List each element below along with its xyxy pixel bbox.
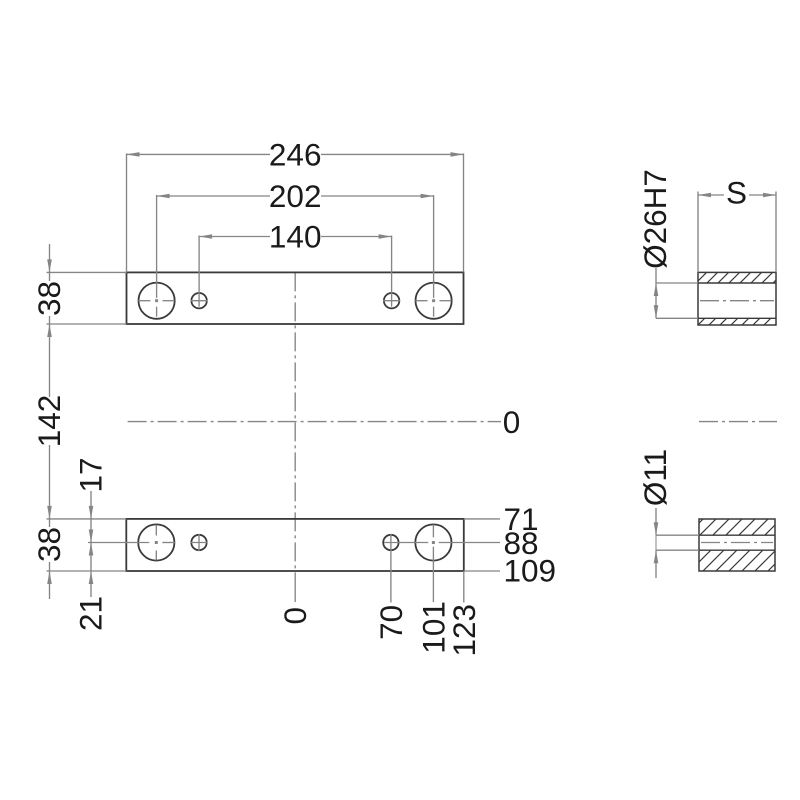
svg-text:38: 38	[31, 281, 67, 316]
svg-text:142: 142	[31, 395, 67, 448]
svg-text:17: 17	[73, 457, 109, 492]
svg-text:Ø26H7: Ø26H7	[637, 169, 673, 269]
svg-text:109: 109	[504, 552, 557, 588]
svg-text:246: 246	[269, 136, 322, 172]
svg-text:123: 123	[446, 604, 482, 657]
svg-text:S: S	[726, 175, 747, 211]
svg-text:0: 0	[277, 607, 313, 625]
svg-text:70: 70	[373, 605, 409, 640]
svg-text:0: 0	[503, 404, 521, 440]
svg-text:Ø11: Ø11	[637, 449, 673, 506]
svg-text:202: 202	[269, 178, 322, 214]
svg-text:38: 38	[31, 527, 67, 562]
svg-text:21: 21	[73, 596, 109, 631]
svg-text:140: 140	[269, 219, 322, 255]
